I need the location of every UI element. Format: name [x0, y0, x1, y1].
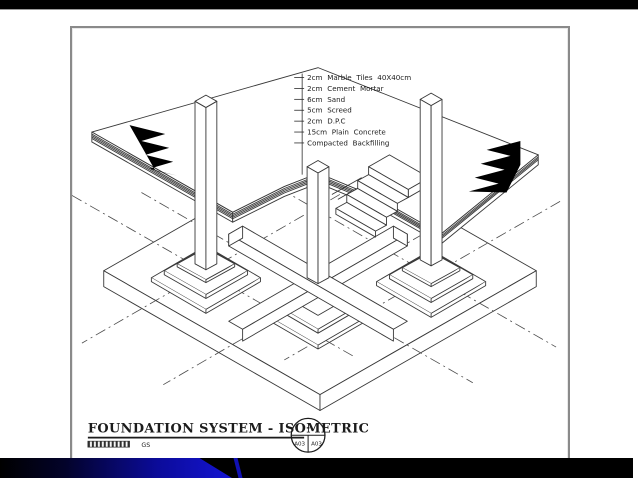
- reference-sheet-left: A03: [294, 442, 305, 448]
- drawing-title: FOUNDATION SYSTEM - ISOMETRIC: [88, 421, 369, 436]
- layer-label: 2cm Marble Tiles 40X40cm: [307, 73, 411, 82]
- slide: { "slide": { "background": "#ffffff", "t…: [0, 0, 638, 478]
- top-bar: [0, 0, 638, 10]
- foundation-isometric-drawing: 2cm Marble Tiles 40X40cm 2cm Cement Mort…: [72, 28, 568, 462]
- layer-label: 15cm Plain Concrete: [307, 128, 386, 137]
- scale-label: GS: [141, 442, 150, 449]
- bottom-bar-blue-streak: [234, 458, 243, 478]
- layer-label: 2cm D.P.C: [307, 117, 345, 126]
- reference-top: -: [306, 423, 310, 433]
- reference-sheet-right: A03: [311, 442, 322, 448]
- bottom-bar: [0, 458, 638, 478]
- slide-area: 2cm Marble Tiles 40X40cm 2cm Cement Mort…: [0, 11, 638, 457]
- bottom-bar-end-gap: [633, 458, 638, 478]
- layer-label: 2cm Cement Mortar: [307, 84, 384, 93]
- layer-label: Compacted Backfilling: [307, 138, 389, 147]
- title-block: FOUNDATION SYSTEM - ISOMETRIC GS - A03 A…: [88, 418, 369, 452]
- bottom-bar-blue-gradient: [0, 458, 232, 478]
- scale-bar: [88, 441, 130, 447]
- layer-label: 5cm Screed: [307, 106, 352, 115]
- drawing-frame: 2cm Marble Tiles 40X40cm 2cm Cement Mort…: [70, 26, 570, 464]
- title-underline: [88, 437, 304, 439]
- layer-label: 6cm Sand: [307, 95, 345, 104]
